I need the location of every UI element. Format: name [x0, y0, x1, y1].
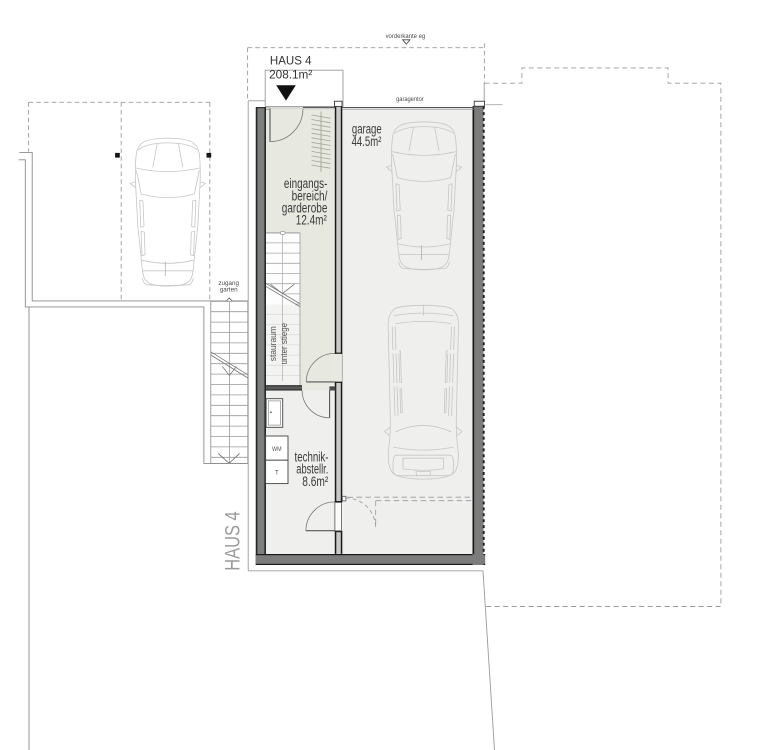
svg-text:stauraum: stauraum — [268, 326, 279, 361]
svg-text:8.6m²: 8.6m² — [302, 474, 328, 489]
svg-text:vorderkante eg: vorderkante eg — [386, 33, 426, 40]
svg-text:WM: WM — [272, 446, 282, 453]
svg-text:208.1m²: 208.1m² — [269, 68, 312, 82]
svg-text:HAUS 4: HAUS 4 — [270, 54, 312, 68]
svg-text:HAUS 4: HAUS 4 — [222, 511, 245, 571]
svg-text:unter stiege: unter stiege — [279, 323, 290, 365]
svg-text:44.5m²: 44.5m² — [352, 134, 382, 149]
svg-text:T: T — [275, 470, 279, 477]
svg-text:garten: garten — [220, 287, 238, 294]
svg-text:garagentor: garagentor — [396, 96, 424, 103]
svg-text:12.4m²: 12.4m² — [296, 213, 327, 228]
